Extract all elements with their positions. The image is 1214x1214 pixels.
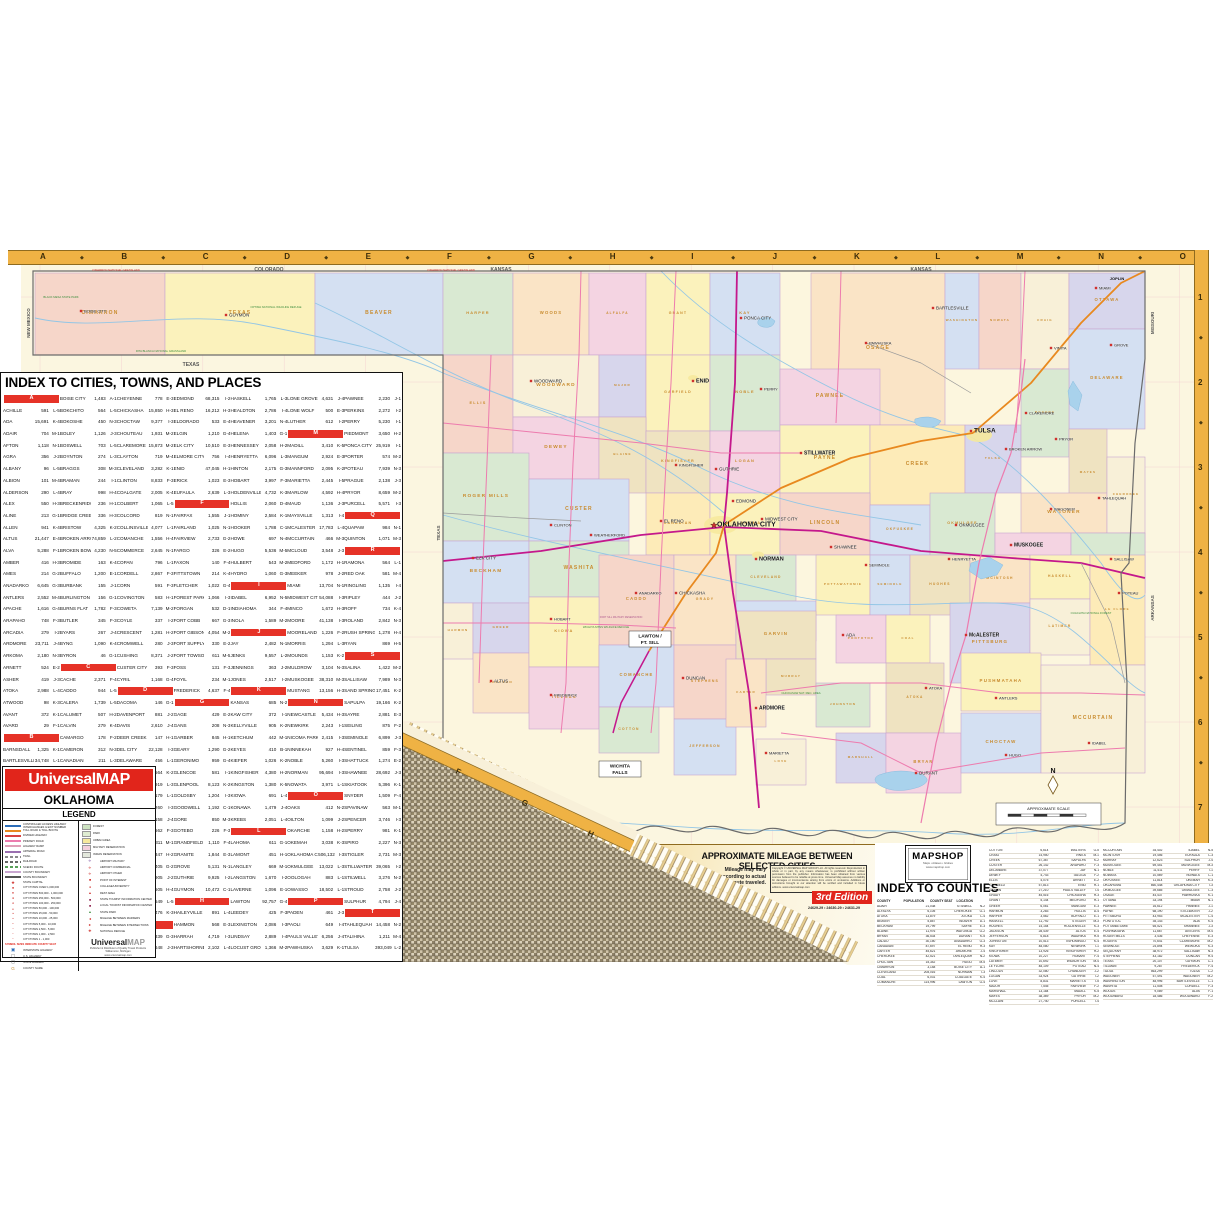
index-row: LONE WOLF500E-3 [287, 405, 344, 417]
index-row: FREDERICK4,637F-4 [174, 685, 231, 697]
grid-number-right: 1 [1198, 293, 1202, 302]
index-row: SAYRE2,881E-3 [344, 709, 401, 721]
svg-text:STILLWATER: STILLWATER [804, 451, 836, 457]
index-section-bar: S [345, 652, 400, 660]
index-row: ACHILLE591L-5 [3, 405, 60, 417]
svg-text:OUACHITA NATIONAL FOREST: OUACHITA NATIONAL FOREST [1071, 611, 1112, 615]
svg-text:EL RENO: EL RENO [664, 519, 684, 524]
index-row: HOBART3,997F-3 [230, 475, 287, 487]
index-row: GOTEBO226F-3 [174, 825, 231, 837]
svg-text:HARMON: HARMON [448, 628, 469, 632]
index-row: CALUMET507H-2 [60, 709, 117, 721]
index-row: COWETA7,139M-2 [117, 603, 174, 615]
grid-marker: ◆ [894, 255, 899, 260]
index-row: QUAPAW984N-1 [344, 522, 401, 534]
area-swatch [82, 845, 91, 851]
index-row: STILWELL3,276N-2 [344, 872, 401, 884]
index-row: MAUD1,136J-3 [287, 498, 344, 510]
svg-text:SEMINOLE: SEMINOLE [869, 563, 890, 568]
svg-text:BROKEN ARROW: BROKEN ARROW [1009, 447, 1042, 452]
svg-text:CUSTER: CUSTER [565, 506, 593, 512]
svg-text:ANADARKO: ANADARKO [639, 591, 661, 596]
legend-symbol-item: ✚NATIONAL REFUGE [82, 928, 154, 934]
index-row: LEEDEY425F-3 [230, 907, 287, 919]
index-row: DAVENPORT881J-2 [117, 709, 174, 721]
svg-text:MAYES: MAYES [1080, 470, 1096, 474]
legend-area-item: FOREST [82, 823, 154, 830]
line-swatch [5, 830, 21, 832]
index-section-bar: R [345, 547, 400, 555]
index-row: GUTHRIE9,925I-2 [174, 872, 231, 884]
index-row: JONES2,517I-2 [230, 674, 287, 686]
grid-number-right: 7 [1198, 803, 1202, 812]
grid-number-right: 2 [1198, 378, 1202, 387]
svg-text:HARPER: HARPER [466, 310, 490, 315]
index-row: ENID47,045H-1 [174, 463, 231, 475]
index-row: SHATTUCK1,274E-2 [344, 755, 401, 767]
svg-text:WOODWARD: WOODWARD [534, 379, 563, 384]
grid-marker: ◆ [324, 255, 329, 260]
index-row: BOKCHITO564L-5 [60, 405, 117, 417]
county-group-3: MCCURTAIN34,402IDABELN-5MCINTOSH19,456EU… [1103, 849, 1213, 1000]
index-row: HENNESSEY2,058H-2 [230, 440, 287, 452]
index-row: FAXON140F-4 [174, 557, 231, 569]
index-row: LAHOMA611G-1 [230, 837, 287, 849]
index-row: SPERRY981K-1 [344, 825, 401, 837]
svg-text:DURANT: DURANT [919, 771, 938, 776]
index-row: HOMINY2,584K-1 [230, 510, 287, 522]
point-symbol: ● [5, 923, 21, 925]
symbol-icon: ✈ [82, 859, 98, 863]
index-row: FOSS131F-3 [174, 662, 231, 674]
county-index-title: INDEX TO COUNTIES [877, 883, 999, 895]
point-symbol: ● [5, 907, 21, 911]
svg-text:MISSOURI: MISSOURI [1150, 312, 1155, 334]
svg-text:DELAWARE: DELAWARE [1090, 375, 1124, 380]
grid-letter-top: K [854, 252, 860, 261]
svg-text:SEMINOLE: SEMINOLE [877, 582, 902, 586]
svg-text:KIOWA: KIOWA [554, 628, 573, 633]
index-row: NEWKIRK2,243I-1 [287, 720, 344, 732]
index-section-bar: C [61, 664, 116, 672]
grid-letter-top: I [691, 252, 693, 261]
grid-marker: ◆ [80, 255, 85, 260]
svg-text:TEXAS: TEXAS [436, 525, 441, 540]
svg-text:COLORADO: COLORADO [254, 267, 283, 273]
mapshop-logo: MAPSHOP Maps • Atlases • Globes www.maps… [905, 845, 971, 883]
svg-text:PONCA CITY: PONCA CITY [744, 316, 771, 321]
index-row: MORRIS1,294L-3 [287, 638, 344, 650]
point-symbol: ● [5, 901, 21, 905]
line-swatch [5, 825, 21, 827]
index-row: KETCHUM442M-1 [230, 732, 287, 744]
index-row: BYARS267J-4 [60, 627, 117, 639]
index-row: ANADARKO6,645G-3 [3, 580, 60, 592]
svg-text:DEWEY: DEWEY [544, 444, 567, 450]
index-row: TULSA393,049L-2 [344, 942, 401, 954]
index-row: ROLAND2,842N-3 [344, 615, 401, 627]
index-row: BOISE CITY1,483A-1 [60, 393, 117, 405]
index-row: POTEAU7,939N-3 [344, 463, 401, 475]
index-row: BRISTOW4,325K-2 [60, 522, 117, 534]
index-row: SHAWNEE28,692J-3 [344, 767, 401, 779]
index-row: JAY2,482N-1 [230, 638, 287, 650]
symbol-icon: ■ [82, 904, 98, 908]
index-row: SENTINEL859F-3 [344, 744, 401, 756]
index-row: BRAGGS308M-3 [60, 463, 117, 475]
grid-letter-top: B [121, 252, 127, 261]
legend-area-item: URBAN AREA [82, 837, 154, 844]
index-row: RIPLEY444J-2 [344, 592, 401, 604]
svg-text:ELLIS: ELLIS [470, 400, 487, 405]
svg-text:CARTER: CARTER [736, 690, 756, 694]
index-row: PIEDMONT3,650H-2 [344, 428, 401, 440]
svg-text:MIAMI: MIAMI [1099, 286, 1111, 291]
grid-marker: ◆ [1199, 505, 1204, 510]
index-section-bar: A [4, 395, 59, 403]
index-row: BURBANK155J-1 [60, 580, 117, 592]
index-row: ALTUS21,447E-4 [3, 533, 60, 545]
index-row: MOORE41,138I-3 [287, 615, 344, 627]
index-row: ALLEN941K-4 [3, 522, 60, 534]
legend-state-title: OKLAHOMA [3, 793, 155, 809]
index-row: CAMERON312N-3 [60, 744, 117, 756]
svg-text:ALFALFA: ALFALFA [606, 311, 629, 315]
index-column-5: HASKELL1,765L-3HEALDTON2,786I-4HEAVENER3… [230, 393, 287, 959]
index-section-bar: O [288, 792, 343, 800]
index-row: FAIRFAX1,555J-1 [174, 510, 231, 522]
svg-text:LAWTON /: LAWTON / [638, 634, 662, 640]
index-row: GOODWELL1,192C-1 [174, 802, 231, 814]
index-row: INDIAHOMA344F-4 [230, 603, 287, 615]
symbol-icon: ✈ [82, 866, 98, 870]
index-section-bar: Q [345, 512, 400, 520]
index-section-bar: B [4, 734, 59, 742]
grid-letter-top: L [935, 252, 940, 261]
svg-text:WAGONER: WAGONER [1054, 507, 1075, 512]
index-row: BOSWELL703L-5 [60, 440, 117, 452]
index-row: HOOKER1,788C-1 [230, 522, 287, 534]
svg-text:NEW MEXICO: NEW MEXICO [26, 308, 31, 338]
index-row: IDABEL6,952N-5 [230, 592, 287, 604]
index-row: CLAREMORE15,873M-2 [117, 440, 174, 452]
svg-text:BARTLESVILLE: BARTLESVILLE [936, 306, 969, 311]
index-row: GAGE429E-2 [174, 709, 231, 721]
svg-text:BRYAN: BRYAN [913, 759, 933, 764]
index-row: DEL CITY22,128I-3 [117, 744, 174, 756]
point-symbol: ● [5, 918, 21, 920]
index-row: CLAYTON719M-4 [117, 451, 174, 463]
index-row: HINTON2,175G-3 [230, 463, 287, 475]
index-row: BURNS FLAT1,782F-3 [60, 603, 117, 615]
svg-text:GRANT: GRANT [669, 311, 688, 315]
svg-text:WICHITA MTNS WILDLIFE REFUGE: WICHITA MTNS WILDLIFE REFUGE [583, 625, 629, 629]
svg-text:WOODS: WOODS [540, 310, 562, 315]
index-row: BUFFALO1,200E-1 [60, 568, 117, 580]
svg-text:MIDWEST CITY: MIDWEST CITY [765, 517, 798, 522]
publisher-wordmark: UniversalMAP [82, 938, 154, 947]
grid-marker: ◆ [406, 255, 411, 260]
index-row: ELDORADO533E-4 [174, 416, 231, 428]
county-seat-note: SYMBOL SIZES INDICATE COUNTY SEAT [5, 943, 77, 946]
area-swatch [82, 852, 91, 858]
svg-text:PAWNEE: PAWNEE [816, 393, 845, 399]
index-row: CADDO944L-5 [60, 685, 117, 697]
legend-shield-item: GCOUNTY NAME [5, 965, 77, 971]
legend-box: UniversalMAP OKLAHOMA LEGEND CONTROLLED … [2, 766, 156, 958]
svg-text:KAY: KAY [739, 310, 750, 315]
symbol-icon: ■ [82, 878, 98, 882]
mapshop-line2: www.mapshop.com [906, 866, 970, 870]
line-swatch [5, 871, 21, 873]
point-symbol: ● [5, 928, 21, 930]
index-row: FORT COBB667G-3 [174, 615, 231, 627]
svg-text:ADA: ADA [846, 633, 855, 638]
index-row: ALBANY96L-5 [3, 463, 60, 475]
point-symbol: ● [5, 891, 21, 895]
index-row: JENKS9,557L-2 [230, 650, 287, 662]
index-row: PAOLI649I-4 [287, 919, 344, 931]
index-row: ALBION101M-4 [3, 475, 60, 487]
grid-marker: ◆ [243, 255, 248, 260]
index-row: HASKELL1,765L-3 [230, 393, 287, 405]
index-row: BROKEN ARROW74,859L-2 [60, 533, 117, 545]
index-row: ARAPAHO748F-3 [3, 615, 60, 627]
index-row: BARNSDALL1,325K-1 [3, 744, 60, 756]
svg-text:ATOKA: ATOKA [929, 686, 943, 691]
index-row: MULDROW3,104N-3 [287, 662, 344, 674]
svg-text:CLEVELAND: CLEVELAND [750, 575, 781, 579]
grid-marker: ◆ [813, 255, 818, 260]
index-row: DACOMA146G-1 [117, 697, 174, 709]
index-row: STILLWATER39,065I-2 [344, 861, 401, 873]
index-row: KANSAS685N-2 [230, 697, 287, 709]
index-row: STROUD2,758J-2 [344, 884, 401, 896]
svg-text:ELK CITY: ELK CITY [476, 556, 496, 561]
index-row: SAPULPA19,166K-2 [344, 697, 401, 709]
index-row: SEILING875F-2 [344, 720, 401, 732]
index-row: HAILEYVILLE891L-4 [174, 907, 231, 919]
county-row: WOODWARD18,486WOODWARDF-2 [1103, 995, 1213, 1000]
svg-text:TULSA: TULSA [974, 428, 996, 435]
index-row: HOLDENVILLE4,732K-3 [230, 487, 287, 499]
index-row: ARNETT524E-2 [3, 662, 60, 674]
line-swatch [5, 851, 21, 853]
svg-text:NOWATA: NOWATA [990, 318, 1010, 322]
index-section-bar: G [175, 699, 230, 707]
index-row: CAMARGO178F-2 [60, 732, 117, 744]
grid-number-right: 4 [1198, 548, 1202, 557]
index-row: COALGATE2,005K-4 [117, 487, 174, 499]
svg-text:PAWHUSKA: PAWHUSKA [869, 341, 892, 346]
index-column-4: EDMOND68,315I-2EL RENO16,212H-3ELDORADO5… [174, 393, 231, 959]
index-row: TALIHINA1,211M-4 [344, 931, 401, 943]
index-row: OAKS412N-2 [287, 802, 344, 814]
index-row: PURCELL5,571I-3 [344, 498, 401, 510]
index-row: HELENA1,403G-1 [230, 428, 287, 440]
index-row: LANGSTON1,670I-2 [230, 872, 287, 884]
svg-text:CADDO: CADDO [626, 596, 647, 601]
svg-text:KANSAS: KANSAS [910, 267, 932, 273]
legend-area-item: PARK [82, 830, 154, 837]
publisher-web: www.universalmap.com [82, 954, 154, 957]
index-section-bar: M [288, 430, 343, 438]
index-row: OKMULGEE13,022L-3 [287, 861, 344, 873]
svg-text:OKMULGEE: OKMULGEE [959, 523, 985, 528]
svg-text:CHOCTAW: CHOCTAW [986, 739, 1017, 744]
legend-publisher: UniversalMAPPublisher & Distributor of Q… [82, 938, 154, 957]
point-symbol: ● [5, 934, 21, 935]
grid-letter-top: H [610, 252, 616, 261]
svg-text:DUNCAN: DUNCAN [686, 676, 705, 681]
index-row: NICOMA PARK2,415I-3 [287, 732, 344, 744]
svg-text:OPTIMA NATIONAL WILDLIFE REFUG: OPTIMA NATIONAL WILDLIFE REFUGE [250, 305, 301, 309]
symbol-icon: ● [82, 885, 98, 889]
svg-text:LINCOLN: LINCOLN [810, 520, 841, 526]
index-row: MCLOUD3,548J-3 [287, 545, 344, 557]
grid-number-right: 3 [1198, 463, 1202, 472]
svg-text:VINITA: VINITA [1054, 346, 1067, 351]
index-row: EL RENO16,212H-3 [174, 405, 231, 417]
index-row: FOREST PARK1,066I-3 [174, 592, 231, 604]
index-row: CYRIL1,168G-4 [117, 674, 174, 686]
county-index-headers: COUNTYPOPULATIONCOUNTY SEATLOCATION [877, 899, 983, 903]
index-row: ALINE213G-1 [3, 510, 60, 522]
grid-marker: ◆ [1057, 255, 1062, 260]
line-swatch [5, 840, 21, 842]
index-row: HOLLIS2,060D-4 [230, 498, 287, 510]
index-row: KIEFER1,026K-2 [230, 755, 287, 767]
index-row: PRAGUE2,138J-3 [344, 475, 401, 487]
index-row: NOWATA3,971L-1 [287, 779, 344, 791]
index-row: ADAIR704M-1 [3, 428, 60, 440]
svg-text:GARFIELD: GARFIELD [664, 390, 692, 394]
index-row: AMBER416H-3 [3, 557, 60, 569]
index-row: GROVE5,131N-1 [174, 861, 231, 873]
index-row: GLENPOOL8,123K-2 [174, 779, 231, 791]
index-row: AGRA356J-2 [3, 451, 60, 463]
svg-text:MAJOR: MAJOR [614, 383, 631, 387]
index-row: SAND SPRINGS17,451K-2 [344, 685, 401, 697]
index-row: HENRYETTA6,096L-3 [230, 451, 287, 463]
grid-letter-top: O [1180, 252, 1186, 261]
index-row: LUTHER612I-2 [287, 416, 344, 428]
svg-text:APPROXIMATE SCALE: APPROXIMATE SCALE [1027, 806, 1070, 811]
index-row: COVINGTON583H-1 [117, 592, 174, 604]
svg-text:GREER: GREER [492, 625, 509, 629]
index-row: BRIDGE CREEK336H-3 [60, 510, 117, 522]
symbol-icon: ■ [82, 898, 98, 902]
index-row: KELLYVILLE905K-2 [230, 720, 287, 732]
index-row: CLINTON8,833F-3 [117, 475, 174, 487]
svg-text:POTEAU: POTEAU [1122, 591, 1139, 596]
svg-text:HOBART: HOBART [554, 617, 571, 622]
index-row: HAMMON568E-3 [174, 919, 231, 931]
svg-text:JOPLIN: JOPLIN [1110, 276, 1125, 281]
index-row: AFTON1,118N-1 [3, 440, 60, 452]
grid-letter-top: M [1017, 252, 1024, 261]
index-row: FORGAN532D-1 [174, 603, 231, 615]
index-row: CUSHING8,371J-2 [117, 650, 174, 662]
index-row: COLLINSVILLE4,077L-1 [117, 522, 174, 534]
index-row: GUYMON10,472C-1 [174, 884, 231, 896]
index-row: COMMERCE2,645N-1 [117, 545, 174, 557]
index-row: LAVERNE1,096E-1 [230, 884, 287, 896]
index-row: OKARCHE1,158H-2 [287, 825, 344, 837]
index-row: COLCORD819N-1 [117, 510, 174, 522]
index-row: HEAVENER3,201N-4 [230, 416, 287, 428]
index-row: RAMONA564L-1 [344, 557, 401, 569]
index-row: ELGIN1,210G-4 [174, 428, 231, 440]
point-symbol: ● [5, 912, 21, 915]
line-swatch [5, 876, 21, 878]
index-row: NORMAN95,694I-3 [287, 767, 344, 779]
index-row: MARLOW4,592H-4 [287, 487, 344, 499]
legend-body: CONTROLLED ACCESS HIGHWAY INTERCHANGES &… [3, 821, 155, 971]
index-row: GEARY1,290G-2 [174, 744, 231, 756]
grid-marker: ◆ [1199, 675, 1204, 680]
svg-text:WASHINGTON: WASHINGTON [946, 318, 979, 322]
index-row: JENNINGS363J-2 [230, 662, 287, 674]
index-row: GARBER845H-1 [174, 732, 231, 744]
index-section-bar: I [231, 582, 286, 590]
grid-marker: ◆ [1199, 335, 1204, 340]
universalmap-logo: UniversalMAP [5, 769, 153, 791]
legend-point-item: ●CITY/TOWN 1 - 1,000 [5, 937, 77, 942]
grid-letter-top: C [203, 252, 209, 261]
svg-text:SHAWNEE: SHAWNEE [834, 545, 857, 550]
index-row: RYAN869H-5 [344, 638, 401, 650]
grid-marker: ◆ [1199, 590, 1204, 595]
symbol-icon: ✚ [82, 929, 98, 933]
svg-text:PERRY: PERRY [764, 387, 778, 392]
index-row: FAIRVIEW2,733G-2 [174, 533, 231, 545]
map-frame-top: A◆B◆C◆D◆E◆F◆G◆H◆I◆J◆K◆L◆M◆N◆O [8, 250, 1207, 265]
index-row: PRYOR8,659M-2 [344, 487, 401, 499]
svg-text:ALTUS: ALTUS [494, 679, 508, 684]
svg-text:CRAIG: CRAIG [1037, 318, 1053, 322]
index-row: GANS208N-3 [174, 720, 231, 732]
symbol-icon: ▲ [82, 910, 98, 914]
svg-text:GRADY: GRADY [696, 597, 714, 601]
county-row: COMANCHE114,996LAWTONG-4 [877, 981, 985, 986]
index-row: ANTLERS2,552M-4 [3, 592, 60, 604]
index-row: BYRON46G-1 [60, 650, 117, 662]
index-row: SPENCER3,746I-3 [344, 814, 401, 826]
legend-area-item: INDIAN RESERVATION [82, 851, 154, 858]
county-group-2: COTTON6,614WALTERSG-5CRAIG14,950VINITAM-… [989, 849, 1099, 1005]
index-row: MANGUM2,924E-3 [287, 451, 344, 463]
index-row: GORE850M-3 [174, 814, 231, 826]
index-row: NEWCASTLE5,434H-3 [287, 709, 344, 721]
index-row: BRAMAN244I-1 [60, 475, 117, 487]
grid-marker: ◆ [731, 255, 736, 260]
index-row: COMANCHE1,556H-4 [117, 533, 174, 545]
index-row: GLENCOE581I-1 [174, 767, 231, 779]
svg-text:ANTLERS: ANTLERS [999, 696, 1018, 701]
svg-text:GROVE: GROVE [1114, 343, 1129, 348]
svg-text:ENID: ENID [696, 379, 709, 385]
grid-marker: ◆ [568, 255, 573, 260]
svg-text:PUSHMATAHA: PUSHMATAHA [980, 678, 1023, 683]
index-row: CRESCENT1,281H-2 [117, 627, 174, 639]
index-row: SEMINOLE6,899J-3 [344, 732, 401, 744]
svg-text:TEXAS: TEXAS [183, 362, 200, 368]
index-row: LAMONT451H-1 [230, 849, 287, 861]
index-row: KAW CITY372I-1 [230, 709, 287, 721]
index-row: ALVA5,288F-1 [3, 545, 60, 557]
index-row: PERRY5,230I-1 [344, 416, 401, 428]
